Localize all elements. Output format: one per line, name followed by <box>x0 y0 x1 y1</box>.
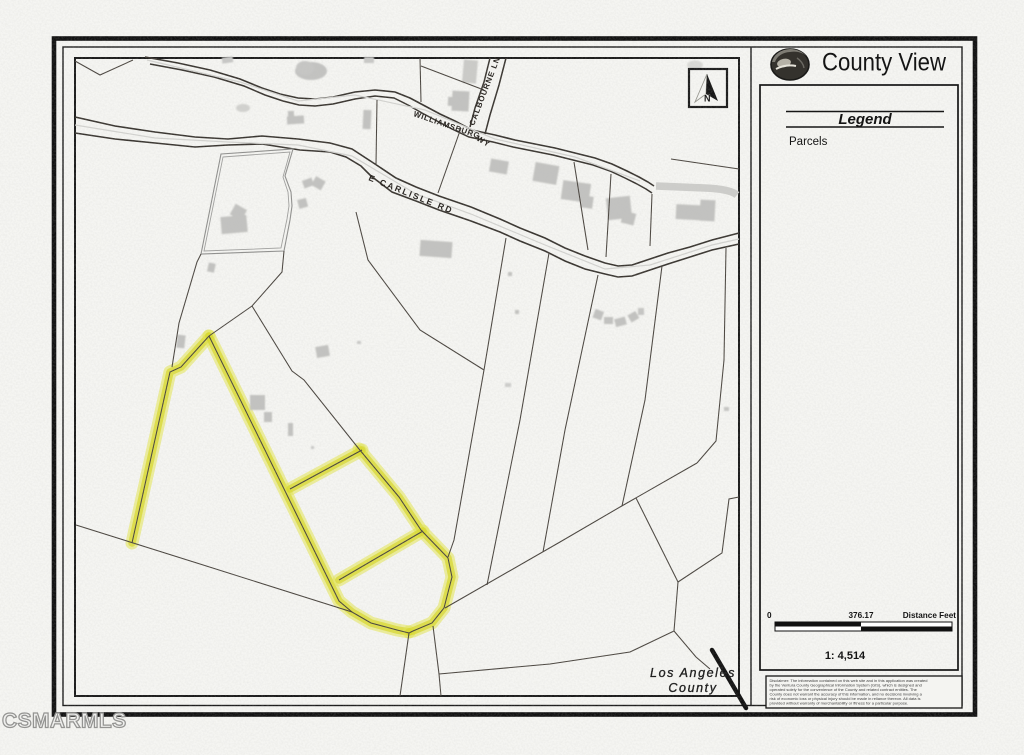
svg-text:provided without warranty of m: provided without warranty of merchantabi… <box>770 701 909 706</box>
svg-text:Legend: Legend <box>838 111 892 128</box>
svg-text:Parcels: Parcels <box>789 136 828 148</box>
svg-text:0: 0 <box>767 611 772 620</box>
svg-text:376.17: 376.17 <box>848 611 873 620</box>
svg-text:1: 4,514: 1: 4,514 <box>825 650 866 662</box>
svg-text:County View: County View <box>822 49 947 77</box>
svg-text:Distance Feet: Distance Feet <box>903 611 957 620</box>
svg-text:CSMARMLS: CSMARMLS <box>2 710 127 733</box>
